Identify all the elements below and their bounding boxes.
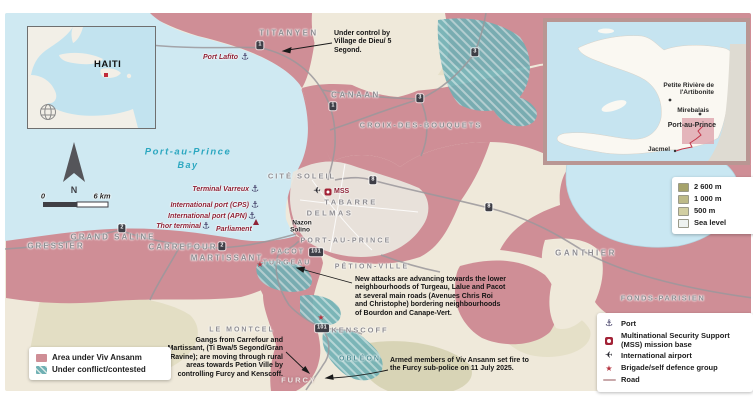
route-badge-1: 1 [256,41,263,49]
map-label-cite-soleil: CITÉ SOLEIL [268,172,336,181]
inset-haiti: Petite Rivière de l'Artibonite Mirebalai… [543,18,750,165]
map-label-kenscoff: KENSCOFF [331,326,388,335]
poi-mss: MSS [334,188,349,195]
inset-caribbean-haiti-label: HAITI [94,59,121,70]
poi-port-lafito: Port Lafito [203,54,238,61]
anchor-icon: ⚓ [251,186,259,195]
north-label: N [71,185,78,195]
map-label-obleon: OBLÉON [339,356,381,363]
map-label-port-au-prince: PORT-AU-PRINCE [300,238,391,245]
poi-thor-terminal: Thor terminal [156,223,201,230]
elevation-label: 2 600 m [694,183,722,192]
legend-symbol-label: Road [621,376,640,385]
map-label-tabarre: TABARRE [324,198,378,207]
legend-elevation-row: 2 600 m [678,183,753,192]
legend-elevation: 2 600 m 1 000 m 500 m Sea level [672,177,753,234]
legend-symbol-label: Brigade/self defence group [621,364,718,373]
inset-label-petite-riviere: Petite Rivière de l'Artibonite [659,82,714,97]
map-label-titanyen: TITANYEN [259,29,318,38]
map-label-fonds-parisien: FONDS-PARISIEN [621,294,706,303]
inset-label-mirebalais: Mirebalais [677,107,709,114]
road-line-icon [603,379,616,381]
port-anchor-icon: ⚓ [605,320,613,329]
legend-elevation-row: 1 000 m [678,195,753,204]
haiti-map [547,22,746,161]
legend-symbols: ⚓ Port Multinational Security Support (M… [597,313,753,392]
map-label-turgeau: TURGEAU [263,260,312,267]
elevation-label: Sea level [694,219,726,228]
route-badge-101: 101 [309,248,323,256]
airport-icon: ✈ [313,188,321,197]
map-label-pacot: PACOT [271,249,305,256]
contested-swatch [36,366,47,374]
legend-symbol-row: Multinational Security Support (MSS) mis… [602,332,748,349]
poi-parliament: Parliament [216,226,252,233]
parliament-marker-icon [253,219,259,225]
route-badge-8: 8 [369,176,376,184]
legend-symbol-row: ★ Brigade/self defence group [602,364,748,373]
anchor-icon: ⚓ [241,54,249,63]
map-label-petion-ville: PÉTION-VILLE [335,264,410,271]
legend-symbol-row: Road [602,376,748,385]
legend-symbol-row: ✈ International airport [602,352,748,361]
route-badge-2: 2 [218,242,225,250]
annotation-furcy-fire: Armed members of Viv Ansanm set fire to … [390,357,530,374]
legend-areas: Area under Viv Ansanm Under conflict/con… [29,347,171,380]
poi-international-port-apn: International port (APN) [168,213,247,220]
legend-area-label: Area under Viv Ansanm [52,353,142,362]
scale-start: 0 [41,192,45,201]
legend-symbol-label: International airport [621,352,692,361]
brigade-star-icon: ★ [256,261,263,269]
elevation-swatch-sea [678,219,689,228]
bay-label-line1: Port-au-Prince [145,147,231,158]
caribbean-map [28,27,155,128]
annotation-village-de-dieu: Under control by Village de Dieu/ 5 Sego… [334,30,402,55]
legend-symbol-label: Port [621,320,636,329]
map-label-croix-des-bouquets: CROIX-DES-BOUQUETS [360,121,483,130]
map-label-gressier: GRESSIER [27,242,84,251]
poi-international-port-cps: International port (CPS) [170,202,249,209]
annotation-new-attacks: New attacks are advancing towards the lo… [355,276,507,318]
map-label-furcy: FURCY [281,376,317,385]
brigade-star-icon: ★ [605,365,612,373]
map-label-martissant: MARTISSANT [191,254,263,263]
bay-label-line2: Bay [177,160,198,170]
inset-label-port-au-prince: Port-au-Prince [668,122,716,130]
inset-caribbean: HAITI [27,26,156,129]
legend-elevation-row: Sea level [678,219,753,228]
mss-base-icon [325,189,332,196]
map-label-nazon: Nazon [292,220,312,227]
map-label-carrefour: CARREFOUR [148,243,217,252]
map-page: Port-au-Prince Bay TITANYEN CANAAN CROIX… [0,0,753,402]
legend-area-label: Under conflict/contested [52,365,146,374]
map-label-le-montcel: LE MONTCEL [209,327,275,334]
scale-bar [43,202,108,207]
legend-area-row: Under conflict/contested [36,365,164,374]
annotation-gangs-moving: Gangs from Carrefour and Martissant, (Ti… [158,337,283,379]
inset-label-jacmel: Jacmel [648,146,670,153]
poi-terminal-varreux: Terminal Varreux [192,186,249,193]
map-label-grand-saline: GRAND SALINE [71,233,156,242]
elevation-swatch-1000 [678,195,689,204]
legend-symbol-label: Multinational Security Support (MSS) mis… [621,332,748,349]
map-label-canaan: CANAAN [331,91,381,100]
anchor-icon: ⚓ [202,223,210,232]
anchor-icon: ⚓ [251,202,259,211]
route-badge-1: 1 [329,102,336,110]
route-badge-3: 3 [471,48,478,56]
viv-ansanm-swatch [36,354,47,362]
legend-elevation-row: 500 m [678,207,753,216]
scale-end: 6 km [93,192,110,201]
legend-symbol-row: ⚓ Port [602,320,748,329]
elevation-label: 1 000 m [694,195,722,204]
map-label-solino: Solino [290,227,310,234]
route-badge-101: 101 [315,324,329,332]
legend-area-row: Area under Viv Ansanm [36,353,164,362]
mss-base-icon [605,337,613,345]
brigade-star-icon: ★ [317,314,324,322]
map-label-delmas: DELMAS [307,209,354,218]
elevation-swatch-500 [678,207,689,216]
map-label-ganthier: GANTHIER [555,249,617,258]
elevation-label: 500 m [694,207,715,216]
route-badge-8: 8 [485,203,492,211]
elevation-swatch-2600 [678,183,689,192]
route-badge-3: 3 [416,94,423,102]
airport-icon: ✈ [605,352,613,361]
route-badge-2: 2 [118,224,125,232]
haiti-marker [104,73,108,77]
